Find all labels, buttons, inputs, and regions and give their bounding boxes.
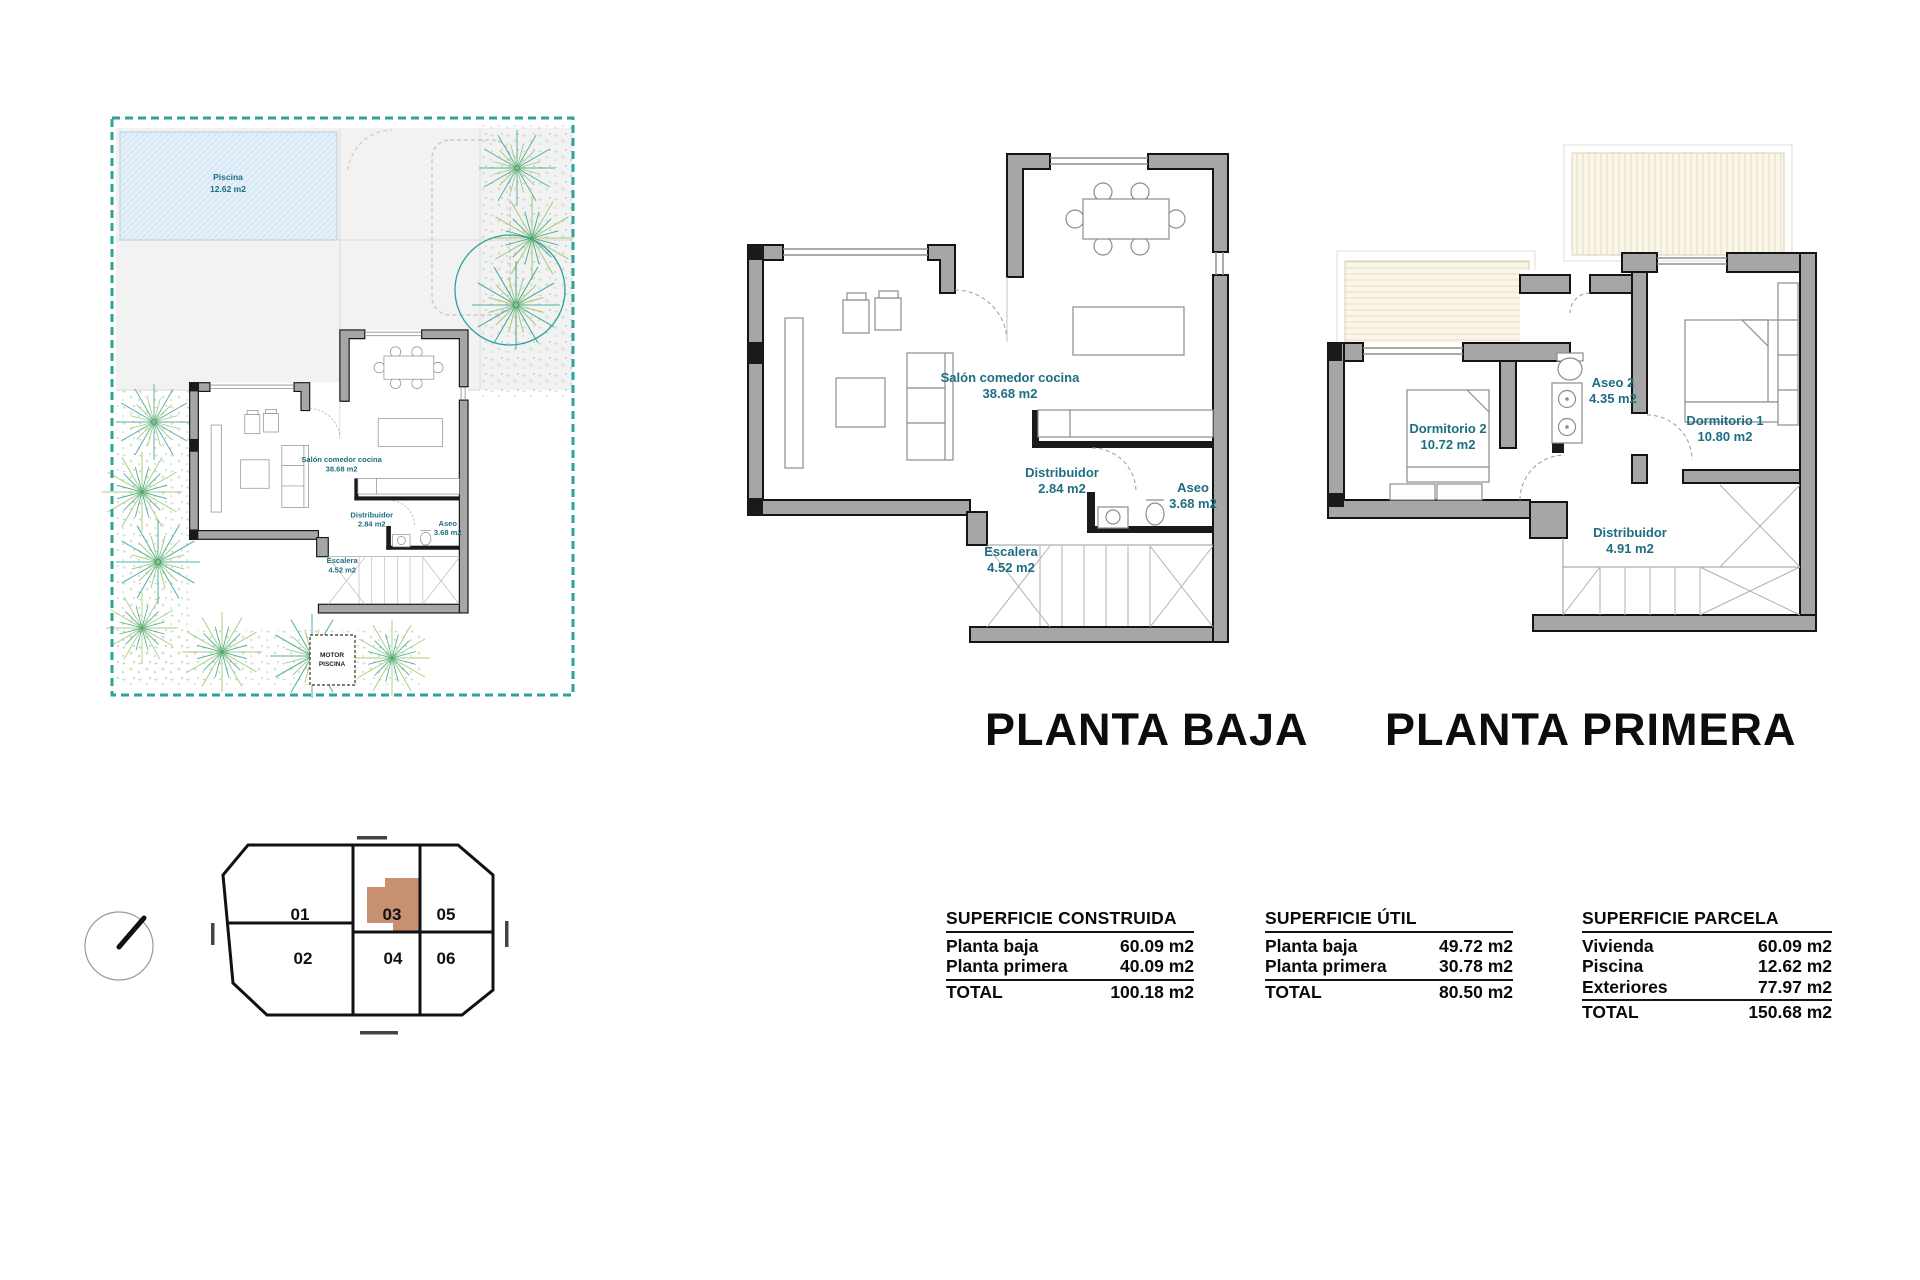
table-row: Vivienda 60.09 m2 [1582,936,1832,957]
pool-label: Piscina [213,172,243,182]
table-row: Exteriores 77.97 m2 [1582,977,1832,998]
unit-label-05: 05 [437,905,456,924]
plot-outline [223,845,493,1015]
pool-motor-label-2: PISCINA [319,661,346,668]
unit-label-03: 03 [383,905,402,924]
table-total-row: TOTAL 100.18 m2 [946,979,1194,1003]
garden-bottom [116,630,421,685]
room-area-dormitorio1: 10.80 m2 [1698,429,1753,444]
table-title: SUPERFICIE PARCELA [1582,908,1832,933]
unit-label-02: 02 [294,949,313,968]
wardrobe [1778,283,1798,425]
compass-needle [119,918,144,947]
room-area-dormitorio2: 10.72 m2 [1421,437,1476,452]
table-title: SUPERFICIE ÚTIL [1265,908,1513,933]
table-row: Planta primera 30.78 m2 [1265,956,1513,977]
planta-baja-plan [740,130,1300,700]
planta-baja-title: PLANTA BAJA [985,704,1265,756]
room-label-dormitorio1: Dormitorio 1 [1686,413,1763,428]
unit-label-01: 01 [291,905,310,924]
table-superficie-parcela: SUPERFICIE PARCELA Vivienda 60.09 m2 Pis… [1582,908,1832,1023]
unit-label-04: 04 [384,949,403,968]
roof-terrace [1572,153,1784,255]
room-label-aseo2: Aseo 2 [1592,375,1635,390]
garden-right [482,125,572,397]
table-title: SUPERFICIE CONSTRUIDA [946,908,1194,933]
table-total-row: TOTAL 150.68 m2 [1582,999,1832,1023]
pool-motor-box [310,635,355,685]
table-row: Planta baja 60.09 m2 [946,936,1194,957]
bed-double [1685,320,1790,402]
pool-area: 12.62 m2 [210,184,246,194]
table-total-row: TOTAL 80.50 m2 [1265,979,1513,1003]
planta-primera-plan: Dormitorio 2 10.72 m2 Aseo 2 4.35 m2 Dor… [1280,115,1860,695]
room-area-distribuidor-p1: 4.91 m2 [1606,541,1654,556]
planta-primera-title: PLANTA PRIMERA [1385,704,1745,756]
pool-motor-label-1: MOTOR [320,652,344,659]
unit-label-06: 06 [437,949,456,968]
plot-map: 01 02 03 04 05 06 [60,825,540,1075]
table-row: Planta baja 49.72 m2 [1265,936,1513,957]
room-label-distribuidor-p1: Distribuidor [1593,525,1667,540]
site-plan: MOTOR PISCINA Piscina 12.62 m2 [80,90,600,720]
table-row: Piscina 12.62 m2 [1582,956,1832,977]
table-superficie-util: SUPERFICIE ÚTIL Planta baja 49.72 m2 Pla… [1265,908,1513,1002]
bed-single [1407,390,1489,482]
table-row: Planta primera 40.09 m2 [946,956,1194,977]
roof-terrace [1345,261,1529,355]
room-area-aseo2: 4.35 m2 [1589,391,1637,406]
table-superficie-construida: SUPERFICIE CONSTRUIDA Planta baja 60.09 … [946,908,1194,1002]
room-label-dormitorio2: Dormitorio 2 [1409,421,1486,436]
